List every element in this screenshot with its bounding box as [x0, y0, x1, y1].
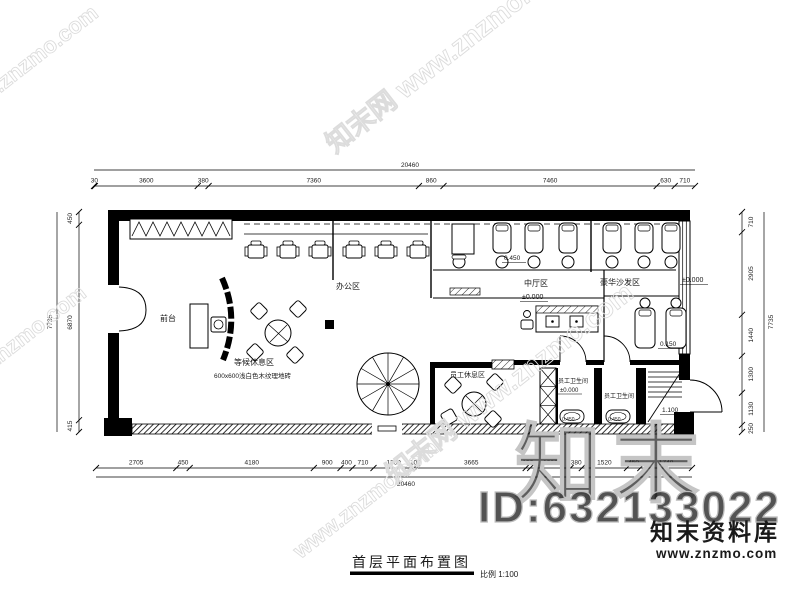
label-floor-note: 600x600浅白色木纹理地砖: [214, 371, 291, 380]
diagonal-watermark: www.znzmo.com: [0, 0, 103, 129]
dim-label: 450: [178, 460, 189, 467]
label-lower-bed-level: 0.150: [660, 341, 677, 348]
lounge-top-wall: [430, 362, 492, 368]
spiral-center: [386, 382, 390, 386]
massage-bed: [525, 223, 543, 268]
label-staff-toilet-1-level: ±0.000: [560, 388, 579, 394]
site-branding: 知末资料库 www.znzmo.com: [650, 519, 780, 561]
corridor-wall-c: [630, 360, 690, 365]
sink-drain: [551, 320, 554, 323]
dim-label: 2905: [748, 266, 755, 281]
dim-label: 710: [679, 178, 690, 185]
corridor-wall-b: [586, 360, 604, 365]
office-chair: [343, 241, 365, 258]
waiting-chair: [289, 300, 307, 318]
diagonal-watermark: 知末网 www.znzmo.com: [320, 0, 579, 159]
toilet-wall-2: [594, 368, 602, 424]
dim-label: 860: [426, 178, 437, 185]
reception-desk: [190, 304, 208, 348]
lounge-left-wall: [430, 362, 435, 424]
attendant-figure: [524, 311, 531, 318]
label-bed-level: 0.450: [504, 255, 521, 262]
label-waiting-area: 等候休息区: [234, 357, 274, 367]
drawing-title: 首层平面布置图: [352, 554, 471, 570]
dim-label: 1130: [748, 401, 755, 415]
desk-chair-back: [452, 255, 466, 259]
dim-label: 400: [341, 460, 352, 467]
dim-label: 2705: [129, 460, 144, 467]
dim-label: 250: [748, 423, 755, 434]
left-wall-lower: [108, 333, 119, 418]
sofa-bed: [635, 298, 655, 348]
dim-label: 380: [198, 178, 209, 185]
dim-label: 7460: [543, 178, 558, 185]
dim-label: 7360: [307, 178, 322, 185]
double-door-left: [119, 287, 146, 331]
dim-total-top: 20460: [401, 162, 419, 169]
dim-label: 1300: [748, 367, 755, 382]
site-url: www.znzmo.com: [655, 546, 777, 561]
entry-door-arc: [690, 380, 722, 412]
title-underline-bar: [350, 572, 474, 576]
diagonal-watermark: www.znzmo.com: [287, 435, 442, 564]
toilet2-door-arc: [604, 336, 630, 362]
site-name: 知末资料库: [650, 519, 780, 545]
label-hall-area: 中厅区: [524, 278, 548, 288]
massage-bed: [662, 223, 680, 268]
waiting-chair: [250, 302, 268, 320]
massage-bed: [635, 223, 653, 268]
label-staff-toilet-2: 员工卫生间: [604, 392, 634, 400]
office-chair: [407, 241, 429, 258]
label-staff-lounge: 员工休息区: [450, 370, 485, 379]
dim-label: 1440: [748, 328, 755, 343]
label-staff-toilet-1: 员工卫生间: [558, 377, 588, 385]
drawing-scale: 比例 1:100: [480, 569, 519, 579]
office-chair: [309, 241, 331, 258]
dim-label: 710: [358, 460, 369, 467]
column: [325, 320, 334, 329]
label-front-desk: 前台: [160, 313, 176, 323]
dim-label: 710: [748, 216, 755, 227]
dim-label: 3600: [139, 178, 154, 185]
service-cart: [521, 320, 533, 329]
label-stair-level: 1.100: [662, 407, 679, 414]
massage-bed: [603, 223, 621, 268]
title-block: 首层平面布置图 比例 1:100: [350, 554, 519, 579]
dim-label: 450: [67, 213, 74, 224]
dim-label: 30: [91, 178, 99, 185]
left-wall-upper: [108, 221, 119, 285]
dim-total-right: 7735: [768, 314, 775, 329]
threshold-marker: [378, 426, 396, 431]
waiting-chair: [286, 346, 304, 364]
low-wall-hatch: [450, 288, 480, 295]
toilet-wall-3: [636, 368, 646, 424]
dim-label: 900: [322, 460, 333, 467]
office-desk: [452, 224, 474, 254]
right-wall-segment: [679, 354, 690, 380]
label-office-area: 办公区: [336, 281, 360, 291]
dim-label: 630: [660, 178, 671, 185]
office-chair: [277, 241, 299, 258]
label-hall-level: ±0.000: [522, 294, 543, 301]
massage-bed: [559, 223, 577, 268]
stair-treads: [648, 372, 682, 397]
reception-chair-seat: [214, 320, 223, 329]
floor-plan-drawing: 3036003807360860746063071027054504180900…: [0, 0, 800, 600]
office-chair: [375, 241, 397, 258]
dim-label: 3665: [464, 460, 479, 467]
label-sofa-level: ±0.000: [682, 277, 703, 284]
dim-label: 4180: [245, 460, 260, 467]
diagonal-watermark: www.znzmo.com: [0, 280, 91, 409]
dim-label: 415: [67, 420, 74, 431]
left-corner-column: [104, 418, 132, 436]
office-chair: [245, 241, 267, 258]
